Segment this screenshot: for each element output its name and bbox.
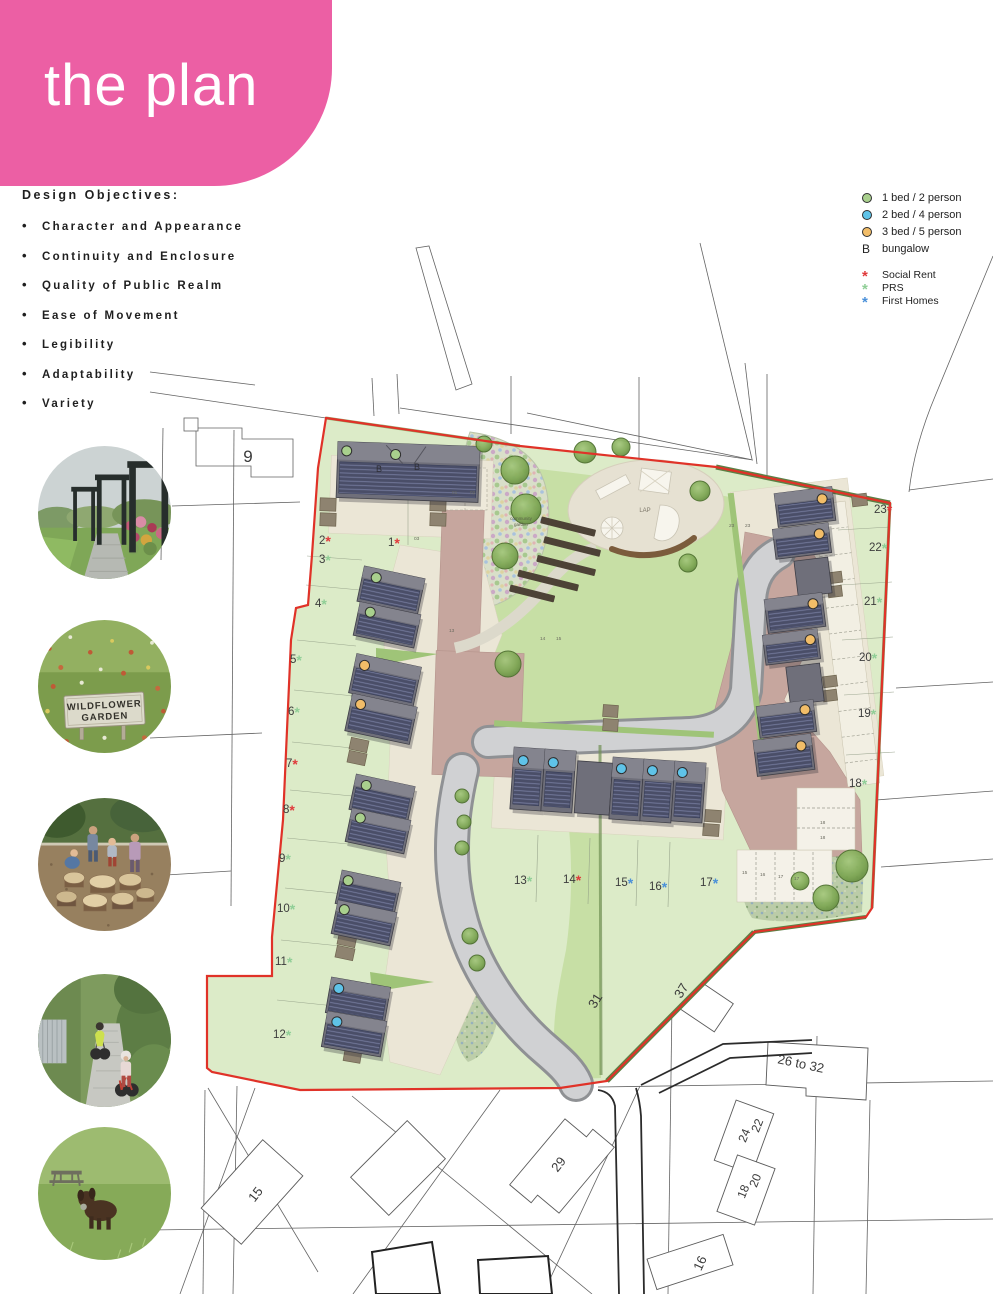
house-building (541, 749, 580, 817)
unit-type-dot-icon (862, 210, 872, 220)
tree (836, 850, 868, 882)
bullet-icon: • (22, 218, 42, 233)
house-building (764, 592, 829, 637)
bullet-icon: • (22, 248, 42, 263)
parking-bay-number: 15 (556, 636, 562, 642)
parking-bay-number: 17 (778, 874, 784, 880)
plot-number-label: 13* (514, 873, 533, 889)
bungalow-letter-label: B (376, 464, 382, 474)
document-page: 1*2*3*4*5*6*7*8*9*10*11*12*13*14*15*16*1… (0, 0, 993, 1294)
objective-item: •Legibility (22, 336, 332, 351)
page-header-banner: the plan (0, 0, 332, 186)
plot-number-label: 15* (615, 875, 634, 891)
unit-type-dot-icon (548, 757, 559, 768)
existing-house-number-label: 9 (243, 447, 252, 466)
design-objectives: Design Objectives: •Character and Appear… (22, 188, 332, 425)
plot-number-label: 2* (319, 533, 331, 549)
objective-item: •Ease of Movement (22, 307, 332, 322)
plot-number-label: 5* (290, 652, 302, 668)
tree (690, 481, 710, 501)
legend-unit-type-row: 1 bed / 2 person (862, 189, 962, 206)
solar-panel-roof (643, 781, 671, 817)
parking-bay-number: 16 (760, 872, 766, 878)
tree (492, 543, 518, 569)
legend-tenure-row: *Social Rent (862, 268, 962, 281)
plot-number-label: 20* (859, 650, 878, 666)
unit-type-dot-icon (342, 446, 352, 456)
parking-bay-number: 02 (470, 490, 476, 496)
tree (476, 436, 492, 452)
plot-number-label: 1* (388, 535, 400, 551)
bullet-icon: • (22, 366, 42, 381)
plot-number-label: 9* (279, 851, 291, 867)
parking-bay-number: 13 (449, 628, 455, 634)
tree (455, 841, 469, 855)
tree (813, 885, 839, 911)
legend-tenure-row: *PRS (862, 281, 962, 294)
plot-number-label: 19* (858, 706, 877, 722)
plot-number-label: 4* (315, 596, 327, 612)
parking-bay-number: 23 (745, 523, 751, 529)
house-building (762, 628, 824, 669)
plot-number-label: 8* (283, 802, 295, 818)
tree (679, 554, 697, 572)
shed (705, 809, 722, 822)
page-title: the plan (0, 0, 332, 119)
plot-number-label: 18* (849, 776, 868, 792)
photo-dog-meadow (38, 1127, 171, 1260)
tree (462, 928, 478, 944)
photo-cycle-path (38, 974, 171, 1107)
tenure-asterisk-icon: * (862, 298, 868, 308)
tree (455, 789, 469, 803)
solar-panel-roof (612, 779, 640, 815)
shed (430, 513, 446, 527)
parking-bay-number: 18 (820, 835, 826, 841)
tree (469, 955, 485, 971)
tree (495, 651, 521, 677)
legend-bungalow: B bungalow (862, 240, 962, 257)
parking-bay-number: 17 (794, 876, 800, 882)
parking-bay-number: 14 (540, 636, 546, 642)
unit-type-dot-icon (862, 193, 872, 203)
plot-number-label: 7* (286, 756, 298, 772)
bullet-icon: • (22, 277, 42, 292)
house-building (671, 761, 709, 827)
bungalow-letter-label: B (414, 462, 420, 472)
legend-unit-types: 1 bed / 2 person2 bed / 4 person3 bed / … (862, 189, 962, 240)
objective-item: •Continuity and Enclosure (22, 248, 332, 263)
plot-number-label: 14* (563, 872, 582, 888)
solar-panel-roof (513, 769, 541, 805)
tree (457, 815, 471, 829)
plot-number-label: 10* (277, 901, 296, 917)
objective-item: •Variety (22, 395, 332, 410)
unit-type-dot-icon (518, 755, 529, 766)
parking-bay-number: 15 (742, 870, 748, 876)
legend-unit-type-row: 2 bed / 4 person (862, 206, 962, 223)
unit-type-dot-icon (390, 449, 400, 459)
photo-wildflower-meadow: WILDFLOWER GARDEN (38, 620, 171, 753)
unit-type-dot-icon (677, 767, 688, 778)
solar-panel-roof (674, 783, 702, 818)
unit-type-dot-icon (647, 765, 658, 776)
parking-bay-number: 01 (452, 490, 458, 496)
parking-bay-number: 23 (729, 523, 735, 529)
photo-natural-play-stumps (38, 798, 171, 931)
bungalow-symbol: B (862, 242, 876, 256)
objective-item: •Character and Appearance (22, 218, 332, 233)
shed (320, 498, 336, 512)
objective-item: •Quality of Public Realm (22, 277, 332, 292)
area-label: garden (514, 522, 529, 527)
objective-item: •Adaptability (22, 366, 332, 381)
objectives-heading: Design Objectives: (22, 188, 332, 202)
plot-number-label: 21* (864, 594, 883, 610)
parking-bay-number: 18 (820, 820, 826, 826)
objectives-list: •Character and Appearance•Continuity and… (22, 218, 332, 410)
plan-legend: 1 bed / 2 person2 bed / 4 person3 bed / … (862, 189, 962, 307)
legend-tenures: *Social Rent*PRS*First Homes (862, 268, 962, 307)
unit-type-dot-icon (862, 227, 872, 237)
tree (501, 456, 529, 484)
wildflower-garden-sign: WILDFLOWER GARDEN (64, 692, 145, 728)
house-building (753, 733, 818, 780)
shed (603, 704, 619, 717)
shed (703, 823, 720, 836)
plot-number-label: 17* (700, 875, 719, 891)
unit-type-dot-icon (616, 763, 627, 774)
bullet-icon: • (22, 336, 42, 351)
bullet-icon: • (22, 307, 42, 322)
plot-number-label: 6* (288, 704, 300, 720)
plot-number-label: 22* (869, 540, 888, 556)
shed (320, 513, 336, 527)
plot-number-label: 16* (649, 879, 668, 895)
house-building (774, 486, 839, 531)
parking-bay-number: 03 (414, 536, 420, 542)
area-label: community (510, 516, 533, 521)
legend-tenure-row: *First Homes (862, 294, 962, 307)
plot-number-label: 3* (319, 552, 331, 568)
bungalow-building (336, 442, 483, 507)
fence (38, 1020, 67, 1064)
tree (612, 438, 630, 456)
solar-panel-roof (544, 771, 572, 807)
plot-number-label: 23* (874, 502, 893, 518)
photo-pergola-garden (38, 446, 171, 579)
plot-number-label: 11* (275, 954, 293, 970)
bullet-icon: • (22, 395, 42, 410)
shed (603, 718, 619, 731)
area-label: LAP (639, 508, 650, 514)
legend-unit-type-row: 3 bed / 5 person (862, 223, 962, 240)
plot-number-label: 12* (273, 1027, 292, 1043)
